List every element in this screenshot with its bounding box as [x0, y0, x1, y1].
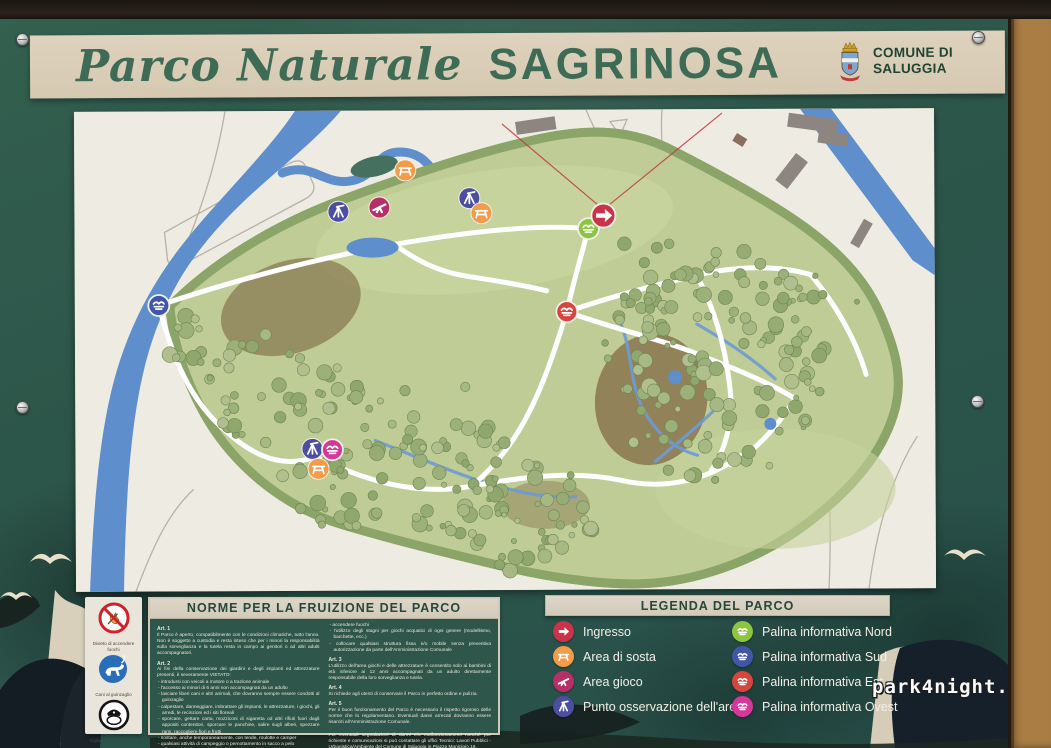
map-marker-ingresso: [591, 204, 615, 228]
rule-article-text: Per il buon funzionamento del Parco è ne…: [329, 708, 492, 727]
pictogram-dog-leash: Cani al guinzaglio: [95, 652, 131, 698]
map-marker-palina-sud: [148, 295, 169, 316]
map-marker-palina-est: [556, 301, 577, 322]
map-marker-area-sosta: [308, 458, 329, 479]
pictogram-no-fire: Divieto di accendere fuochi: [87, 601, 140, 652]
rules-panel: NORME PER LA FRUIZIONE DEL PARCO Art. 1I…: [148, 597, 500, 735]
legend-item-area-sosta: Area di sosta: [553, 646, 743, 667]
legend-label: Palina informativa Ovest: [762, 700, 897, 714]
info-panel-icon: [732, 646, 753, 667]
info-panel-icon: [732, 671, 753, 692]
info-panel-icon: [732, 696, 753, 717]
no-fire-icon: [97, 601, 131, 640]
legend-item-palina-nord: Palina informativa Nord: [732, 621, 897, 642]
legend-label: Palina informativa Nord: [762, 625, 892, 639]
map-marker-punto-osservazione: [302, 438, 323, 459]
police-icon: [97, 698, 131, 737]
legend-column-1: IngressoArea di sostaArea giocoPunto oss…: [553, 621, 743, 721]
legend-label: Palina informativa Sud: [762, 650, 887, 664]
park-type-title: Parco Naturale: [76, 39, 463, 92]
legend-label: Area di sosta: [583, 650, 656, 664]
park-name-title: SAGRINOSA: [488, 38, 782, 90]
observation-icon: [553, 696, 574, 717]
pictogram-panel: Divieto di accendere fuochiCani al guinz…: [85, 597, 142, 734]
rule-bullet: - sporcare, gettare carta, mozziconi di …: [157, 717, 320, 736]
saluggia-coat-of-arms-icon: [834, 40, 866, 82]
pictogram-police: Vigilanza Polizia Locale: [89, 698, 137, 744]
pictogram-label: Vigilanza Polizia Locale: [89, 738, 137, 744]
rule-bullet: - calpestare, danneggiare, imbrattare gl…: [157, 705, 320, 717]
rule-article-text: Ai fini della conservazione dei giardini…: [157, 667, 320, 679]
map-marker-punto-osservazione: [328, 201, 349, 222]
legend-column-2: Palina informativa NordPalina informativ…: [732, 621, 897, 721]
rule-bullet: - collocare qualsiasi struttura fissa e/…: [329, 642, 492, 654]
screw-icon: [972, 31, 985, 44]
legend-label: Ingresso: [583, 625, 631, 639]
seesaw-icon: [553, 671, 574, 692]
map-marker-area-gioco: [369, 197, 390, 218]
rule-article-text: Per eventuali segnalazioni di danni e/o …: [329, 733, 492, 748]
park-map-panel: [74, 108, 936, 592]
screw-icon: [16, 401, 29, 414]
picnic-area-icon: [553, 646, 574, 667]
legend-item-ingresso: Ingresso: [553, 621, 743, 642]
rule-article-text: L'utilizzo dell'area giochi e delle attr…: [329, 664, 492, 683]
rule-article-heading: Art. 1: [157, 626, 320, 633]
rules-column-left: Art. 1Il Parco è aperto, compatibilmente…: [157, 623, 320, 748]
top-frame: [0, 0, 1051, 19]
commune-name: COMUNE DI SALUGGIA: [873, 45, 953, 76]
rule-article-text: Si richiede agli utenti di conservare il…: [329, 692, 492, 698]
commune-block: COMUNE DI SALUGGIA: [834, 40, 953, 83]
legend-item-punto-osservazione: Punto osservazione dell'area: [553, 696, 743, 717]
legend-item-palina-ovest: Palina informativa Ovest: [732, 696, 897, 717]
dog-leash-icon: [96, 652, 130, 691]
rules-column-right: - accendere fuochi- l'utilizzo degli sta…: [329, 623, 492, 748]
park-map-illustration: [74, 108, 936, 592]
arrow-right-icon: [553, 621, 574, 642]
rules-header: NORME PER LA FRUIZIONE DEL PARCO: [150, 599, 498, 619]
rule-bullet: - lasciare liberi cani e altri animali, …: [157, 692, 320, 704]
legend-items: IngressoArea di sostaArea giocoPunto oss…: [545, 621, 905, 726]
legend-item-palina-sud: Palina informativa Sud: [732, 646, 897, 667]
pictogram-label: Divieto di accendere fuochi: [87, 641, 140, 652]
map-marker-palina-ovest: [322, 439, 343, 460]
legend-label: Punto osservazione dell'area: [583, 700, 743, 714]
rule-article-heading: Art. 3: [329, 657, 492, 664]
screw-icon: [16, 33, 29, 46]
legend-item-area-gioco: Area gioco: [553, 671, 743, 692]
commune-line1: COMUNE DI: [873, 45, 953, 61]
legend-label: Area gioco: [583, 675, 643, 689]
park-sign-photo: Parco Naturale SAGRINOSA COMUNE DI SALUG…: [0, 0, 1051, 748]
legend-header: LEGENDA DEL PARCO: [545, 595, 890, 616]
rule-bullet: - l'utilizzo degli stagni per giochi acq…: [329, 629, 492, 641]
commune-line2: SALUGGIA: [873, 61, 953, 77]
legend-label: Palina informativa Est: [762, 675, 883, 689]
rules-body: Art. 1Il Parco è aperto, compatibilmente…: [150, 619, 498, 748]
rule-article-text: Il Parco è aperto, compatibilmente con l…: [157, 633, 320, 658]
map-marker-area-sosta: [471, 203, 492, 224]
rule-article-heading: Art. 5: [329, 701, 492, 708]
map-marker-area-sosta: [395, 160, 416, 181]
info-panel-icon: [732, 621, 753, 642]
wood-frame: [1008, 0, 1051, 748]
screw-icon: [971, 395, 984, 408]
title-bar: Parco Naturale SAGRINOSA COMUNE DI SALUG…: [30, 30, 1005, 98]
